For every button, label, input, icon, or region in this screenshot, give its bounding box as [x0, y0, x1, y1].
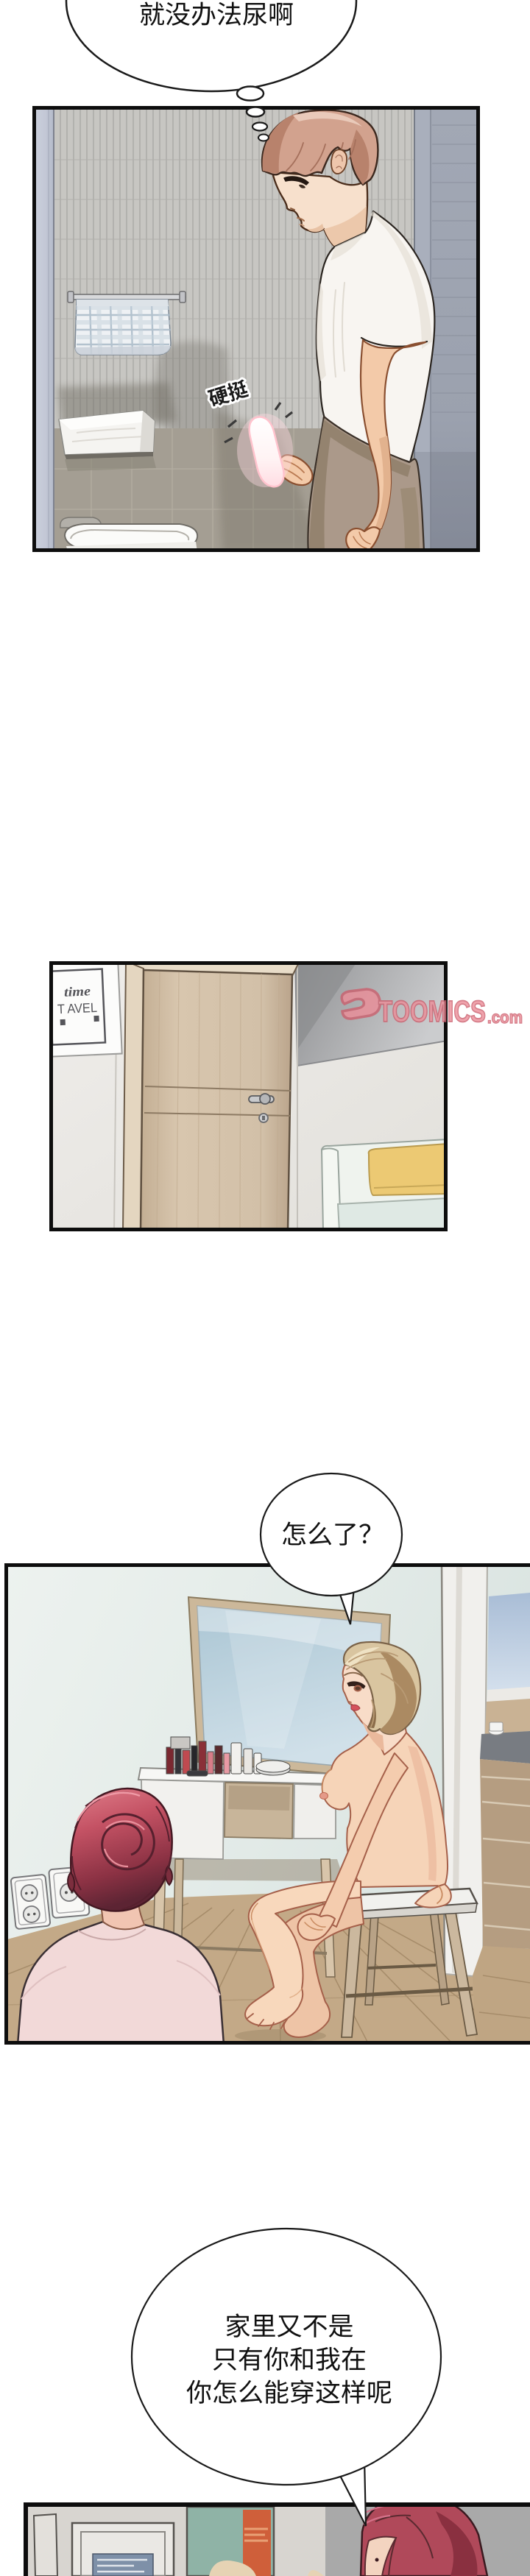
- svg-text:TOOMICS: TOOMICS: [378, 994, 486, 1028]
- svg-text:T AVEL: T AVEL: [57, 1000, 98, 1016]
- svg-text:.com: .com: [487, 1008, 523, 1027]
- svg-text:time: time: [64, 983, 91, 999]
